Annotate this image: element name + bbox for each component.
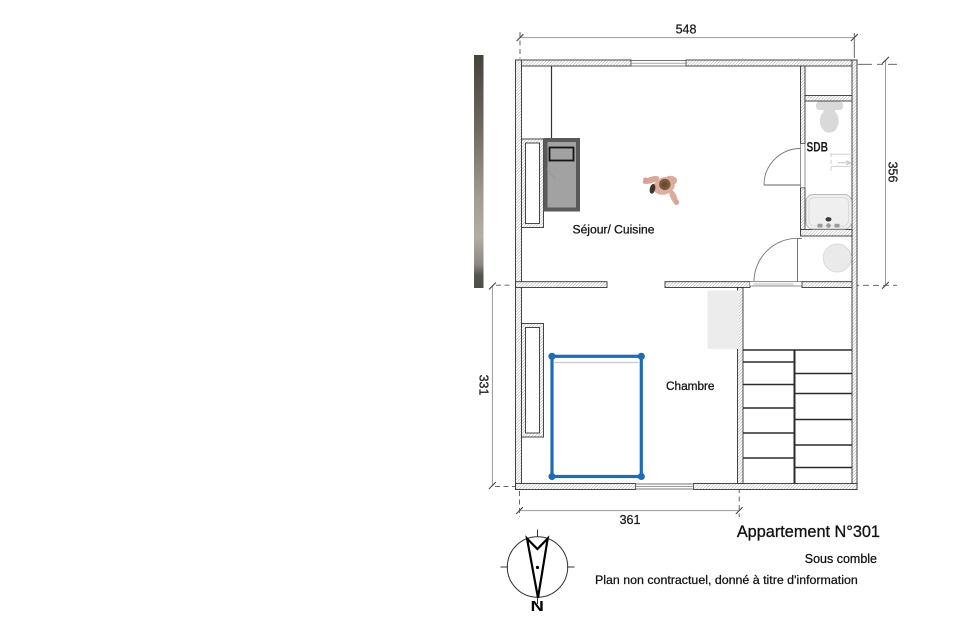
svg-text:Plan non contractuel, donné à: Plan non contractuel, donné à titre d'in… (595, 573, 858, 587)
svg-text:SDB: SDB (807, 139, 829, 154)
svg-text:356: 356 (886, 162, 900, 183)
svg-text:Séjour/ Cuisine: Séjour/ Cuisine (573, 222, 655, 236)
svg-text:Chambre: Chambre (666, 379, 715, 393)
svg-text:Appartement N°301: Appartement N°301 (737, 523, 880, 541)
svg-text:N: N (530, 598, 543, 615)
svg-text:361: 361 (620, 513, 641, 527)
svg-text:548: 548 (676, 23, 697, 37)
svg-text:Sous comble: Sous comble (805, 552, 877, 566)
svg-text:331: 331 (477, 375, 491, 396)
